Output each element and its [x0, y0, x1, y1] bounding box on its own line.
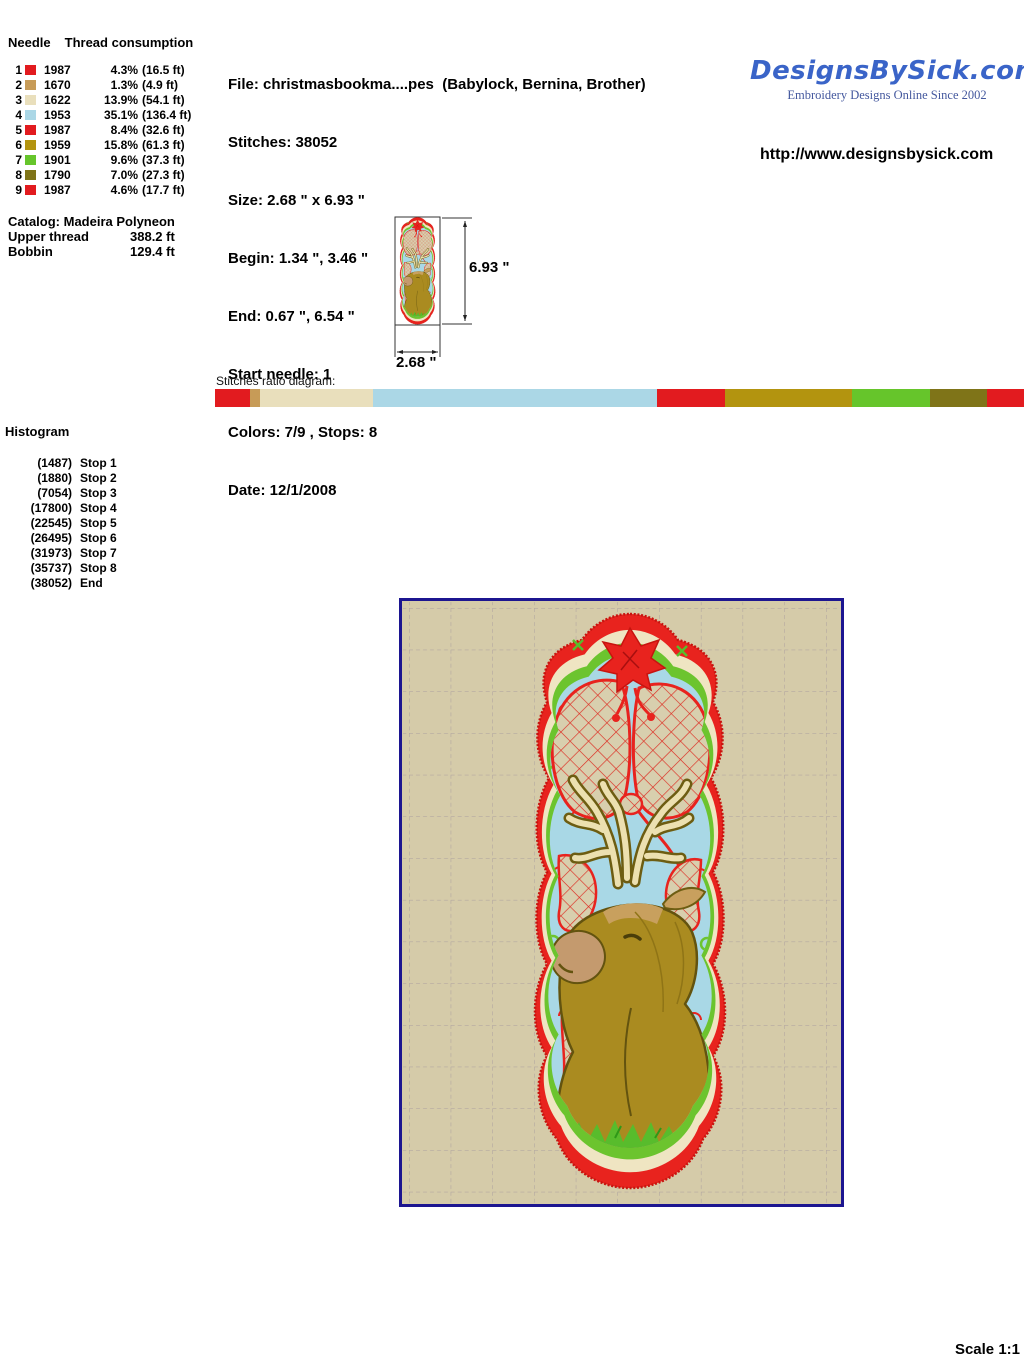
thread-color-swatch — [25, 80, 36, 90]
bookmark-design — [535, 614, 725, 1188]
histogram-entry: (35737)Stop 8 — [0, 560, 117, 575]
thread-color-swatch — [25, 65, 36, 75]
design-preview — [399, 598, 844, 1207]
height-dimension-label: 6.93 " — [469, 259, 509, 276]
histogram-entry: (22545)Stop 5 — [0, 515, 117, 530]
catalog-block: Catalog: Madeira Polyneon Upper thread38… — [8, 214, 175, 259]
ratio-diagram-label: Stitches ratio diagram: — [216, 374, 335, 388]
histogram-entry: (17800)Stop 4 — [0, 500, 117, 515]
thread-color-swatch — [25, 110, 36, 120]
bobbin-line: Bobbin129.4 ft — [8, 244, 175, 259]
needle-row: 4195335.1%(136.4 ft) — [8, 107, 191, 122]
needle-row: 919874.6%(17.7 ft) — [8, 182, 191, 197]
stitches-line: Stitches: 38052 — [228, 133, 646, 152]
histogram-entry: (1880)Stop 2 — [0, 470, 117, 485]
needle-row: 3162213.9%(54.1 ft) — [8, 92, 191, 107]
histogram-list: (1487)Stop 1 (1880)Stop 2 (7054)Stop 3 (… — [0, 455, 117, 590]
histogram-entry: (26495)Stop 6 — [0, 530, 117, 545]
catalog-title: Catalog: Madeira Polyneon — [8, 214, 175, 229]
thread-color-swatch — [25, 95, 36, 105]
thread-color-swatch — [25, 185, 36, 195]
histogram-entry: (1487)Stop 1 — [0, 455, 117, 470]
brand-url: http://www.designsbysick.com — [760, 146, 993, 164]
ratio-segment — [852, 389, 930, 407]
file-name-line: File: christmasbookma....pes (Babylock, … — [228, 75, 646, 94]
ratio-segment — [260, 389, 372, 407]
width-dimension-label: 2.68 " — [396, 354, 436, 371]
colors-line: Colors: 7/9 , Stops: 8 — [228, 423, 646, 442]
design-thumbnail — [395, 217, 440, 325]
histogram-entry: (38052)End — [0, 575, 117, 590]
thread-color-swatch — [25, 170, 36, 180]
date-line: Date: 12/1/2008 — [228, 481, 646, 500]
needle-row: 6195915.8%(61.3 ft) — [8, 137, 191, 152]
needle-row: 719019.6%(37.3 ft) — [8, 152, 191, 167]
thread-color-swatch — [25, 125, 36, 135]
thread-color-swatch — [25, 155, 36, 165]
needle-row: 817907.0%(27.3 ft) — [8, 167, 191, 182]
needle-row: 216701.3%(4.9 ft) — [8, 77, 191, 92]
brand-tagline: Embroidery Designs Online Since 2002 — [750, 88, 1024, 103]
ratio-segment — [250, 389, 261, 407]
thread-color-swatch — [25, 140, 36, 150]
ratio-segment — [215, 389, 250, 407]
col-thread-consumption: Thread consumption — [65, 35, 194, 50]
histogram-title: Histogram — [5, 424, 69, 439]
needle-row: 119874.3%(16.5 ft) — [8, 62, 191, 77]
needle-row: 519878.4%(32.6 ft) — [8, 122, 191, 137]
col-needle: Needle — [8, 35, 51, 50]
ratio-segment — [930, 389, 987, 407]
scale-label: Scale 1:1 — [930, 1341, 1020, 1358]
ratio-segment — [657, 389, 725, 407]
print-preview-page: { "needle_table": { "col_needle": "Needl… — [0, 0, 1024, 1370]
histogram-entry: (31973)Stop 7 — [0, 545, 117, 560]
needle-table-header: NeedleThread consumption — [8, 35, 193, 50]
ratio-bar — [215, 389, 1024, 407]
histogram-entry: (7054)Stop 3 — [0, 485, 117, 500]
ratio-segment — [373, 389, 657, 407]
ratio-segment — [725, 389, 853, 407]
brand-logo: DesignsBySick.com — [750, 56, 1024, 86]
upper-thread-line: Upper thread388.2 ft — [8, 229, 175, 244]
needle-table: 119874.3%(16.5 ft) 216701.3%(4.9 ft) 316… — [8, 62, 191, 197]
ratio-segment — [987, 389, 1024, 407]
